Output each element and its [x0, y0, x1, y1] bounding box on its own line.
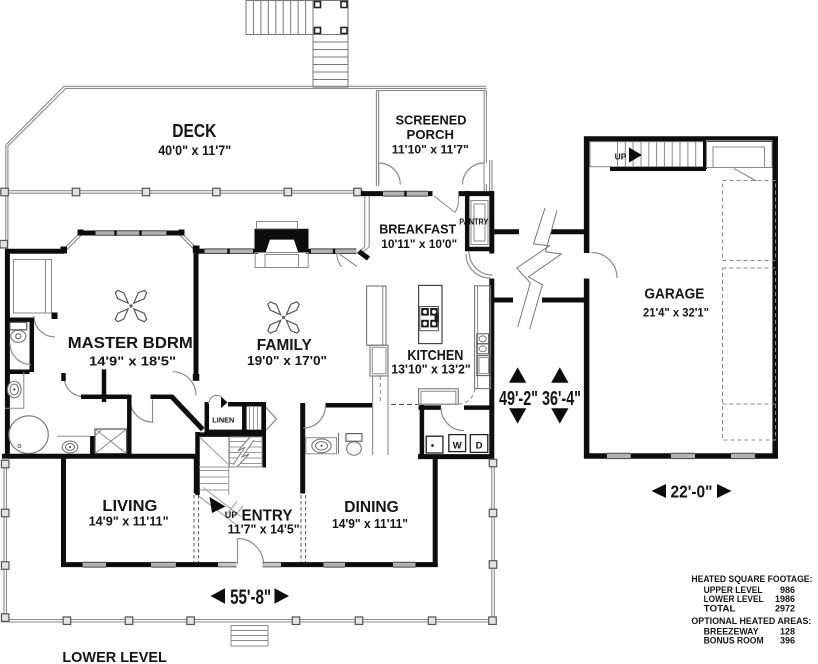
svg-text:14'9" x 11'11": 14'9" x 11'11": [89, 514, 169, 529]
svg-text:21'4" x 32'1": 21'4" x 32'1": [643, 306, 709, 320]
svg-text:22'-0": 22'-0": [671, 481, 713, 501]
svg-text:TOTAL: TOTAL: [704, 603, 737, 613]
svg-text:10'11" x 10'0": 10'11" x 10'0": [381, 237, 457, 251]
svg-text:14'9" x 18'5": 14'9" x 18'5": [89, 354, 176, 369]
svg-text:11'10" x 11'7": 11'10" x 11'7": [392, 143, 469, 157]
svg-text:LIVING: LIVING: [102, 498, 157, 515]
svg-text:396: 396: [780, 635, 795, 645]
svg-text:SCREENED: SCREENED: [396, 114, 467, 128]
svg-text:UP: UP: [615, 152, 627, 162]
svg-text:DECK: DECK: [172, 121, 216, 141]
svg-text:2972: 2972: [775, 603, 795, 613]
svg-text:OPTIONAL HEATED AREAS:: OPTIONAL HEATED AREAS:: [691, 616, 811, 626]
svg-text:GARAGE: GARAGE: [644, 287, 704, 303]
svg-text:13'10" x 13'2": 13'10" x 13'2": [391, 363, 471, 377]
svg-text:MASTER BDRM: MASTER BDRM: [68, 335, 193, 352]
svg-text:D: D: [476, 441, 483, 452]
svg-text:19'0" x 17'0": 19'0" x 17'0": [247, 353, 327, 368]
svg-text:KITCHEN: KITCHEN: [407, 347, 463, 364]
svg-text:40'0" x 11'7": 40'0" x 11'7": [158, 143, 231, 158]
svg-text:PANTRY: PANTRY: [459, 217, 488, 227]
svg-text:BONUS ROOM: BONUS ROOM: [704, 635, 764, 645]
svg-text:11'7" x 14'5": 11'7" x 14'5": [228, 523, 300, 537]
svg-text:DINING: DINING: [344, 499, 399, 516]
svg-text:W: W: [453, 440, 462, 451]
svg-text:PORCH: PORCH: [407, 128, 455, 142]
svg-text:14'9" x 11'11": 14'9" x 11'11": [332, 516, 408, 531]
svg-text:HEATED SQUARE FOOTAGE:: HEATED SQUARE FOOTAGE:: [691, 574, 812, 584]
svg-text:55'-8": 55'-8": [230, 586, 271, 609]
svg-text:49'-2" 36'-4": 49'-2" 36'-4": [499, 388, 581, 410]
svg-text:FAMILY: FAMILY: [257, 337, 312, 354]
svg-text:UP: UP: [225, 510, 238, 520]
svg-text:LINEN: LINEN: [212, 416, 234, 425]
svg-text:BREAKFAST: BREAKFAST: [379, 222, 456, 237]
svg-text:LOWER LEVEL: LOWER LEVEL: [62, 649, 167, 664]
